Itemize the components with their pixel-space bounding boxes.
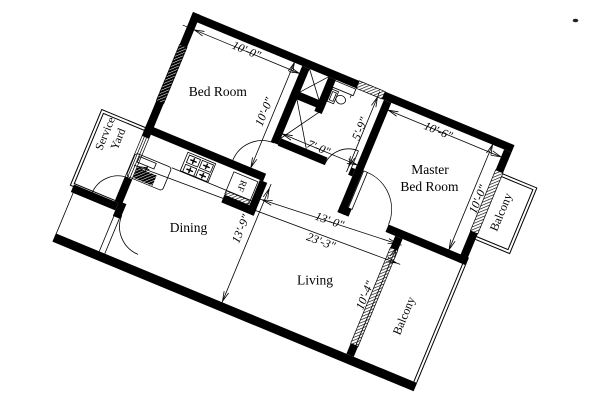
svg-text:Bed Room: Bed Room: [189, 84, 248, 99]
svg-text:Bed Room: Bed Room: [400, 179, 459, 194]
svg-text:Dining: Dining: [170, 220, 208, 235]
svg-text:Living: Living: [297, 272, 333, 287]
svg-text:Master: Master: [411, 162, 449, 177]
